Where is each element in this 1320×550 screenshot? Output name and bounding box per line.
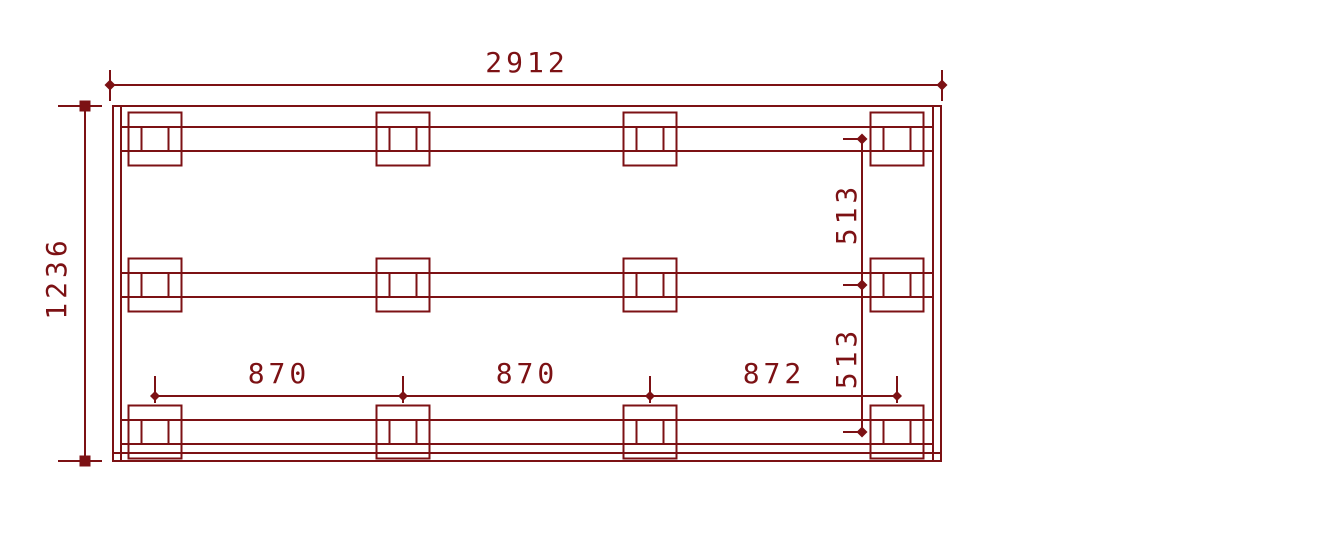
blocks-layer [129,113,924,459]
block [129,406,182,459]
block-outer-square [871,259,924,312]
dim-label-overall-height: 1236 [40,236,73,319]
cad-drawing-canvas: 2912 1236 513 513 [0,0,1320,550]
dim-label-span-2: 870 [496,357,559,390]
dim-tick-marker [857,427,868,438]
block-outer-square [377,406,430,459]
dim-overall-width: 2912 [105,46,948,101]
block [377,406,430,459]
block [624,406,677,459]
frame-outer-rect [113,106,941,461]
block [624,113,677,166]
dim-label-overall-width: 2912 [485,46,568,79]
block [377,259,430,312]
block-outer-square [624,259,677,312]
block-outer-square [624,406,677,459]
frame-outline [113,106,941,461]
block-outer-square [129,259,182,312]
dim-tick-marker [937,80,948,91]
block-outer-square [129,406,182,459]
block [377,113,430,166]
cad-drawing: 2912 1236 513 513 [0,0,1320,550]
block [871,259,924,312]
dim-label-span-1: 870 [248,357,311,390]
block [129,113,182,166]
dim-tick-marker [857,280,868,291]
dim-tick-marker [80,456,91,467]
block-outer-square [624,113,677,166]
dim-block-spacing: 870 870 872 [150,357,902,403]
block [624,259,677,312]
dim-label-span-3: 872 [743,357,806,390]
dim-tick-marker [105,80,116,91]
dim-tick-marker [80,101,91,112]
dim-tick-marker [857,134,868,145]
block [871,406,924,459]
block [129,259,182,312]
dim-tick-marker [398,391,408,401]
dim-tick-marker [892,391,902,401]
block [871,113,924,166]
dim-tick-marker [150,391,160,401]
block-outer-square [871,113,924,166]
dim-rail-spacing: 513 513 [830,134,868,438]
block-outer-square [129,113,182,166]
dim-tick-marker [645,391,655,401]
block-outer-square [871,406,924,459]
dim-label-rail-gap-2: 513 [830,327,863,390]
block-outer-square [377,259,430,312]
dim-label-rail-gap-1: 513 [830,183,863,246]
dim-overall-height: 1236 [40,101,102,467]
block-outer-square [377,113,430,166]
